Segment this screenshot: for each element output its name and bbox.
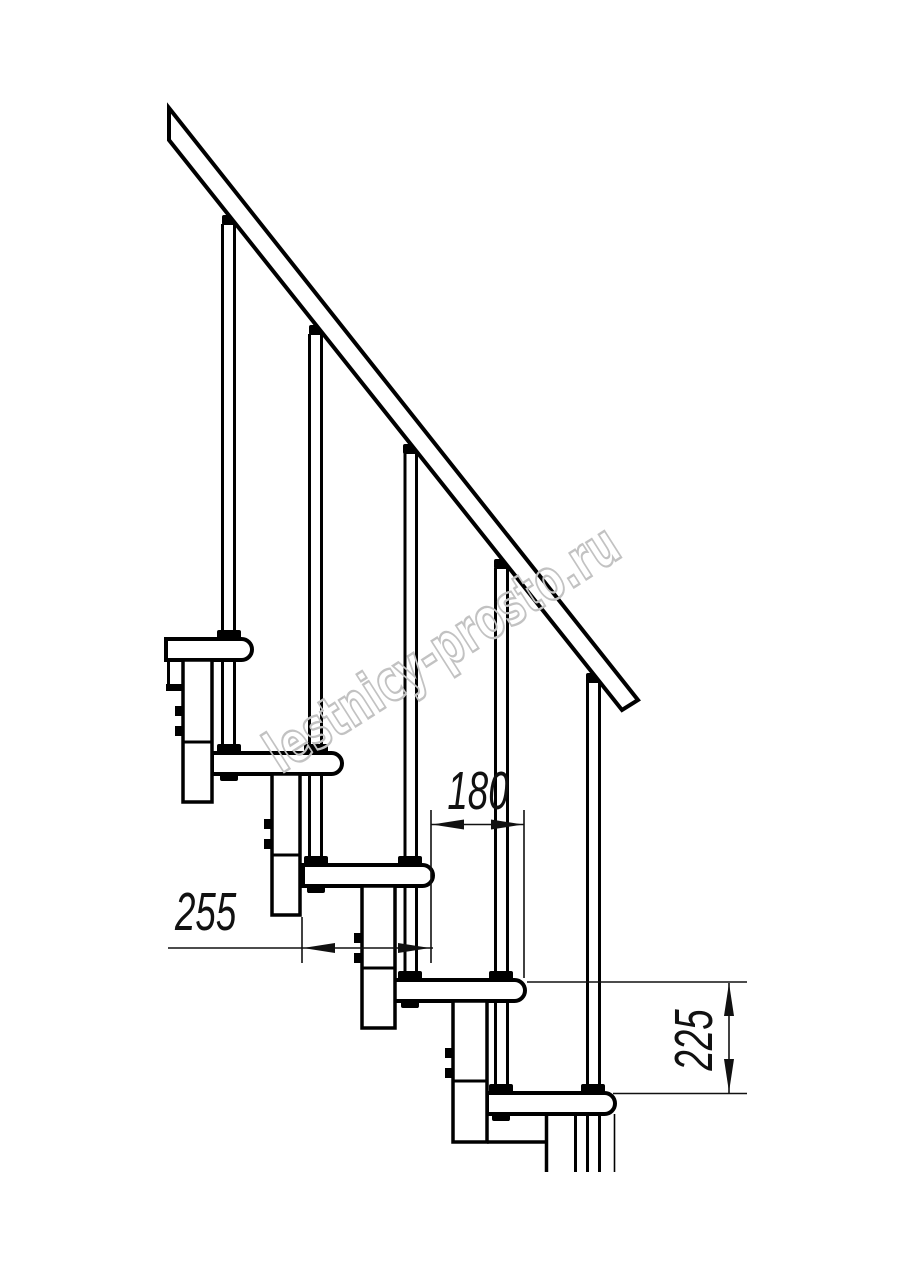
dimension-label-180: 180 [447,760,509,821]
tread-4 [394,980,525,1001]
arrowhead-down-icon [724,1059,734,1092]
tread-5 [487,1093,615,1114]
baluster-3 [405,453,417,1008]
support-module-4 [453,1001,487,1142]
support-module-3 [362,886,395,1028]
base-plate [217,744,241,753]
base-plate [398,971,422,980]
dimension-180: 180 [431,760,524,978]
arrowhead-left-icon [303,943,335,953]
module-bolt [445,1048,454,1058]
base-plate [489,971,513,980]
base-plate [304,856,328,865]
dimension-label-255: 255 [174,881,236,942]
module-bolt [445,1068,454,1078]
support-module-1 [183,660,212,802]
under-tread-nut [401,1001,419,1008]
arrowhead-up-icon [724,983,734,1016]
module-bolt [264,819,273,829]
dimension-label-225: 225 [663,1009,724,1071]
arrowhead-left-icon [432,820,464,830]
arrowhead-right-icon [398,943,430,953]
base-plate [489,1084,513,1093]
baluster-2 [310,334,322,893]
under-tread-nut [307,886,325,893]
module-bolt [354,933,363,943]
drawing-page: 180 255 225 lestnicy-prosto.ru [0,0,914,1280]
stair-elevation-drawing: 180 255 225 lestnicy-prosto.ru [0,0,914,1280]
module-bolt [354,953,363,963]
module-bolt [264,839,273,849]
module-bolt [175,726,184,736]
base-plate [581,1084,605,1093]
base-plate [217,630,241,639]
base-plate [398,856,422,865]
support-module-5-cut [547,1114,615,1172]
module-long-bolt [166,684,184,691]
under-tread-nut [220,774,238,781]
dimension-225: 225 [527,982,747,1094]
tread-3 [303,865,433,886]
support-module-2 [272,774,300,915]
under-tread-nut [492,1114,510,1121]
module-bolt [175,706,184,716]
tread-1 [166,639,252,660]
baluster-1 [223,224,235,779]
